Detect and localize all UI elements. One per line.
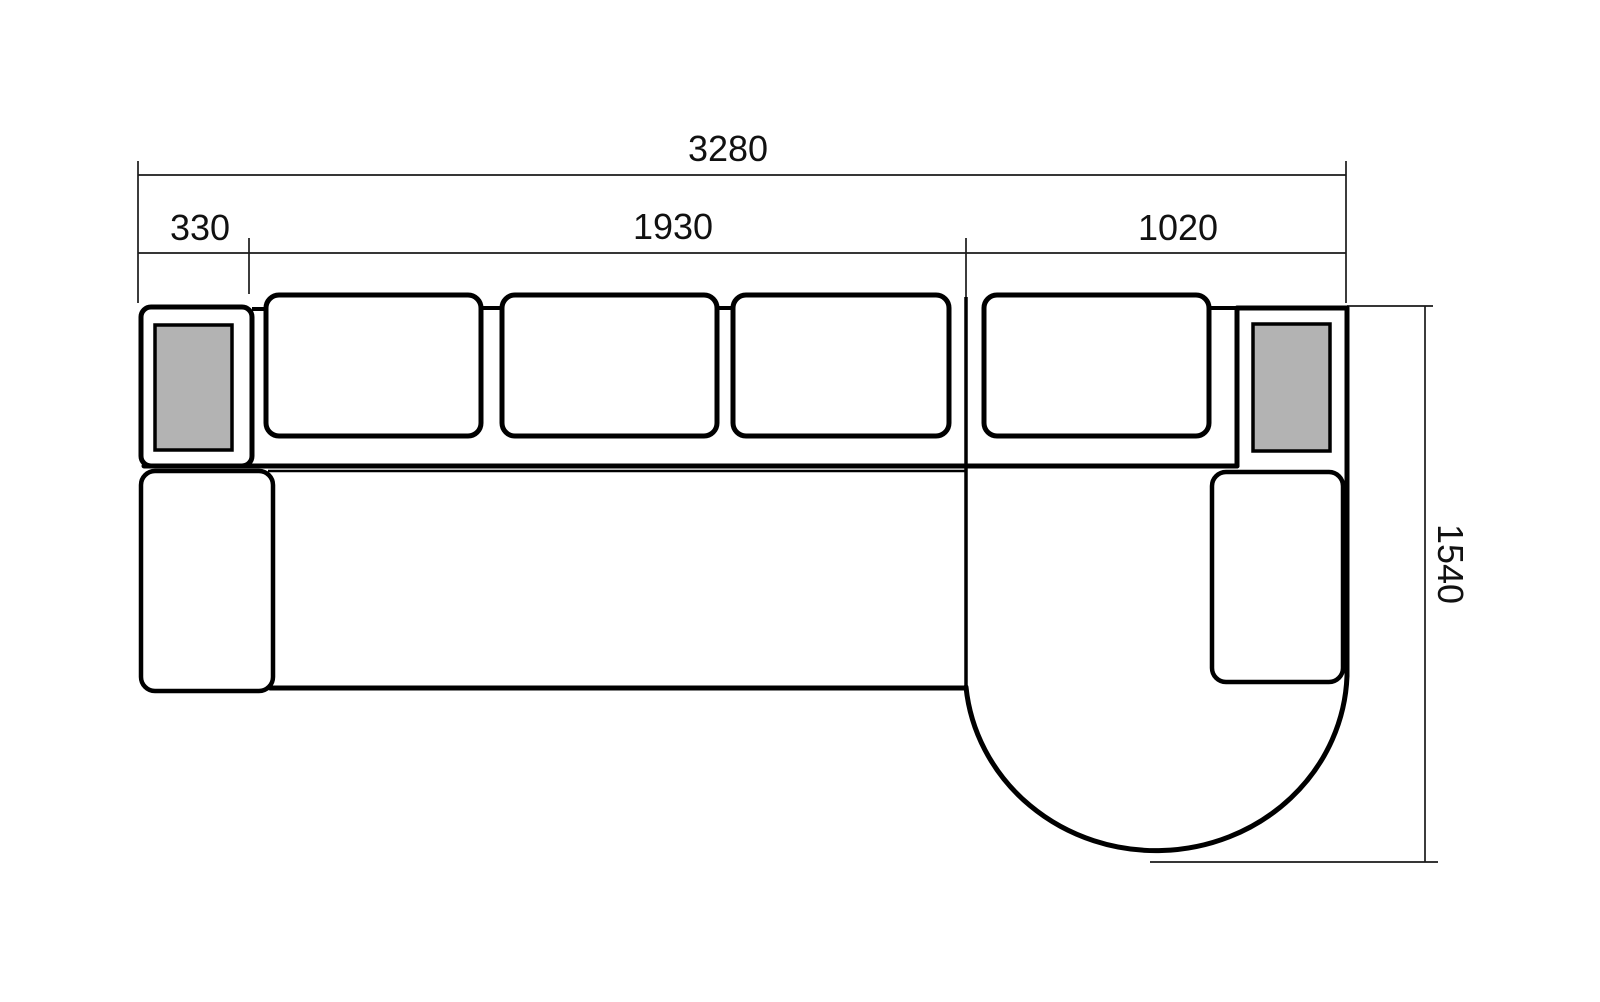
dim-label-total-width: 3280 xyxy=(688,128,768,169)
sofa-technical-drawing: 3280 330 1930 1020 1540 xyxy=(0,0,1600,1002)
dim-label-depth: 1540 xyxy=(1430,524,1471,604)
left-armrest-pillow xyxy=(155,325,232,450)
drawing-canvas: 3280 330 1930 1020 1540 xyxy=(0,0,1600,1002)
sofa-outline xyxy=(141,295,1347,851)
back-cushion-4 xyxy=(984,295,1209,436)
right-armrest-pillow xyxy=(1253,324,1330,451)
dim-label-left-arm: 330 xyxy=(170,207,230,248)
dimension-annotations: 3280 330 1930 1020 1540 xyxy=(138,128,1471,862)
back-cushion-1 xyxy=(266,295,481,436)
back-cushion-2 xyxy=(502,295,717,436)
back-cushion-3 xyxy=(733,295,949,436)
dim-label-chaise: 1020 xyxy=(1138,207,1218,248)
chaise-seat-cushion xyxy=(1212,472,1343,682)
left-seat-cushion xyxy=(141,471,273,691)
dim-label-seats: 1930 xyxy=(633,206,713,247)
